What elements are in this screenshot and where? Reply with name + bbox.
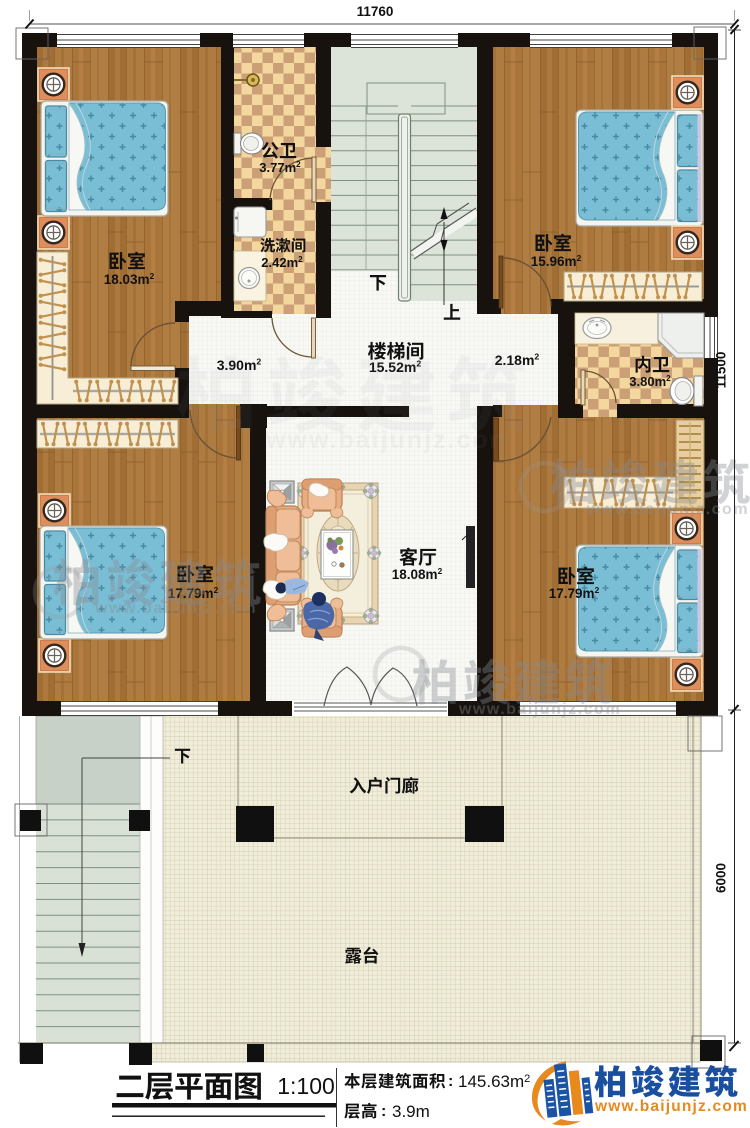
svg-text:2.42m2: 2.42m2 <box>261 255 303 270</box>
svg-text:3.77m2: 3.77m2 <box>259 160 301 175</box>
svg-text:www.baijunjz.com: www.baijunjz.com <box>458 701 621 718</box>
svg-text:3.9m: 3.9m <box>392 1102 430 1121</box>
svg-text:145.63m2: 145.63m2 <box>458 1072 530 1091</box>
svg-text:www.baijunjz.com: www.baijunjz.com <box>265 426 514 454</box>
svg-text::: : <box>381 1103 386 1120</box>
svg-text:18.08m2: 18.08m2 <box>392 566 443 582</box>
svg-text:www.baijunjz.com: www.baijunjz.com <box>594 1098 748 1115</box>
svg-text:11760: 11760 <box>357 4 394 19</box>
svg-text:11500: 11500 <box>714 352 729 389</box>
svg-text:www.baijunjz.com: www.baijunjz.com <box>94 600 257 617</box>
svg-text:www.baijunjz.com: www.baijunjz.com <box>586 501 749 518</box>
svg-text:17.79m2: 17.79m2 <box>549 585 600 601</box>
svg-text:3.80m2: 3.80m2 <box>629 374 671 389</box>
svg-text::: : <box>448 1073 453 1090</box>
svg-text:1:100: 1:100 <box>277 1073 335 1099</box>
svg-text:18.03m2: 18.03m2 <box>104 271 155 287</box>
svg-text:15.96m2: 15.96m2 <box>531 253 582 269</box>
svg-text:6000: 6000 <box>714 863 729 893</box>
